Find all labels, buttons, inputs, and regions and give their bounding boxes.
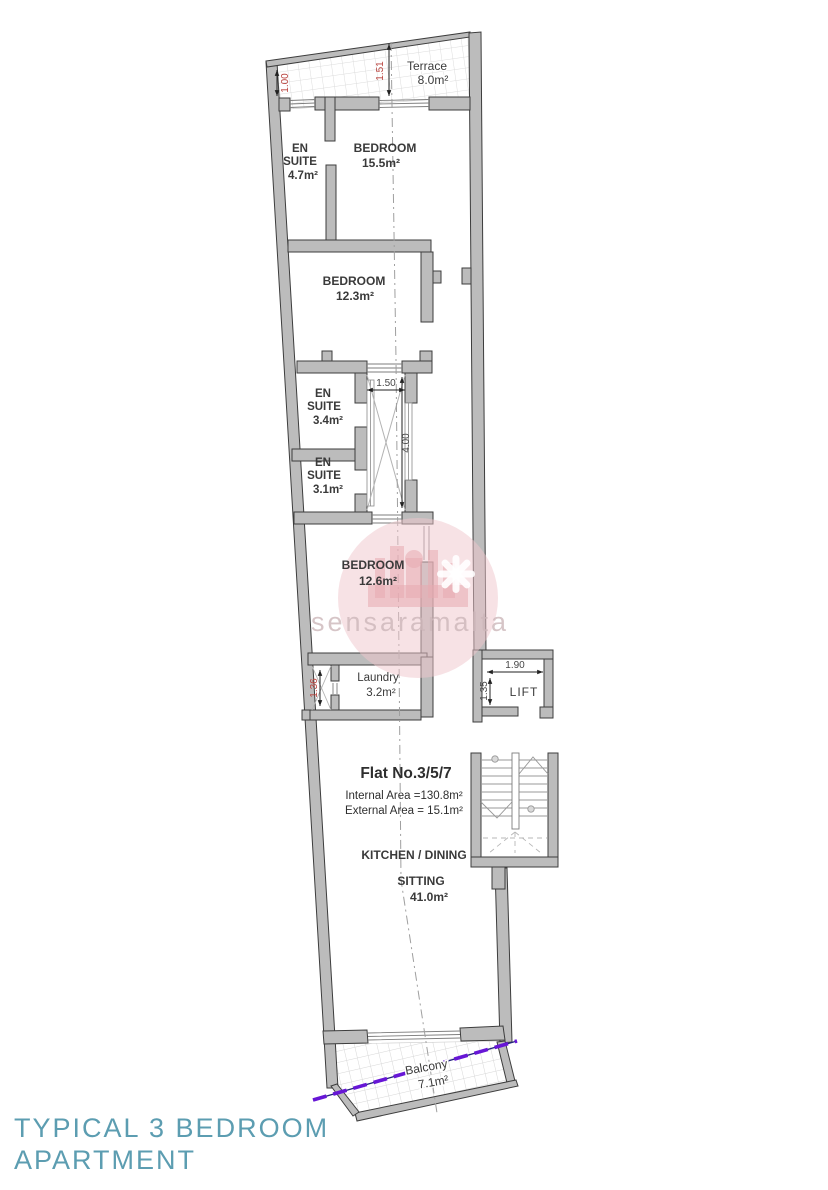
ensuite-low-area: 3.1m² xyxy=(313,484,343,496)
dim-lift-width: 1.90 xyxy=(505,660,525,671)
ensuite-top-label-1: EN xyxy=(292,143,308,155)
wall-kitchen-right xyxy=(495,868,512,1043)
dim-terrace-door: 1.51 xyxy=(375,61,386,81)
sheet-title: TYPICAL 3 BEDROOM APARTMENT xyxy=(14,1113,329,1175)
dim-shaft-width: 1.50 xyxy=(376,378,396,389)
flat-external-area: External Area = 15.1m² xyxy=(345,805,463,817)
laundry-area: 3.2m² xyxy=(366,687,396,699)
bedroom-top-area: 15.5m² xyxy=(362,156,400,170)
sitting-label: SITTING xyxy=(397,874,444,888)
windmill-icon xyxy=(437,555,475,593)
terrace-label: Terrace xyxy=(407,59,447,73)
laundry-label: Laundry xyxy=(357,672,399,684)
sheet-title-line2: APARTMENT xyxy=(14,1145,196,1175)
bedroom-mid-area: 12.3m² xyxy=(336,289,374,303)
ensuite-mid-label-1: EN xyxy=(315,388,331,400)
ensuite-mid-area: 3.4m² xyxy=(313,415,343,427)
flat-number: Flat No.3/5/7 xyxy=(360,765,451,782)
dim-duct: 1.36 xyxy=(309,678,320,698)
floor-plan-page: 1.00 1.51 1.50 4.00 1.36 1.90 1.35 sensa… xyxy=(0,0,828,1190)
terrace-area: 8.0m² xyxy=(418,73,449,87)
sitting-area: 41.0m² xyxy=(410,890,448,904)
ensuite-low-label-2: SUITE xyxy=(307,470,341,482)
ensuite-mid-label-2: SUITE xyxy=(307,401,341,413)
kitchen-dining-label: KITCHEN / DINING xyxy=(361,848,466,862)
dim-lift-depth: 1.35 xyxy=(479,681,490,701)
bedroom-top-label: BEDROOM xyxy=(354,141,417,155)
ensuite-top-area: 4.7m² xyxy=(288,170,318,182)
ensuite-top-label-2: SUITE xyxy=(283,156,317,168)
floor-plan-drawing: 1.00 1.51 1.50 4.00 1.36 1.90 1.35 sensa… xyxy=(0,0,828,1190)
stairs xyxy=(481,753,548,853)
watermark-text: sensaramalta xyxy=(311,607,509,637)
lift-label: LIFT xyxy=(510,685,539,699)
bedroom-low-label: BEDROOM xyxy=(342,558,405,572)
flat-internal-area: Internal Area =130.8m² xyxy=(345,790,462,802)
sheet-title-line1: TYPICAL 3 BEDROOM xyxy=(14,1113,329,1143)
bedroom-low-area: 12.6m² xyxy=(359,574,397,588)
ensuite-low-label-1: EN xyxy=(315,457,331,469)
bedroom-mid-label: BEDROOM xyxy=(323,274,386,288)
dim-shaft-height: 4.00 xyxy=(401,433,412,453)
dim-terrace-left: 1.00 xyxy=(280,73,291,93)
